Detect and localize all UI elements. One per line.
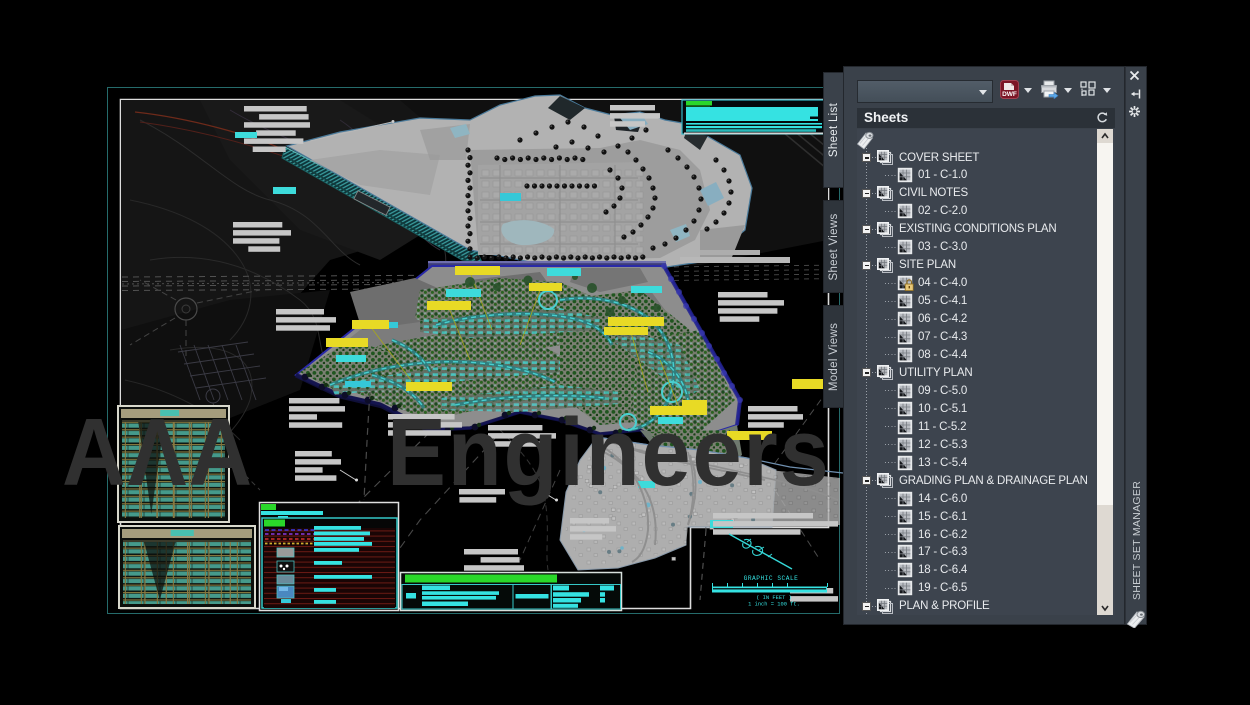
svg-text:DWF: DWF bbox=[1002, 91, 1017, 98]
svg-text:1 inch = 100 ft.: 1 inch = 100 ft. bbox=[748, 602, 800, 608]
svg-text:GRAPHIC SCALE: GRAPHIC SCALE bbox=[744, 575, 799, 582]
svg-text:( IN FEET ): ( IN FEET ) bbox=[756, 595, 792, 601]
